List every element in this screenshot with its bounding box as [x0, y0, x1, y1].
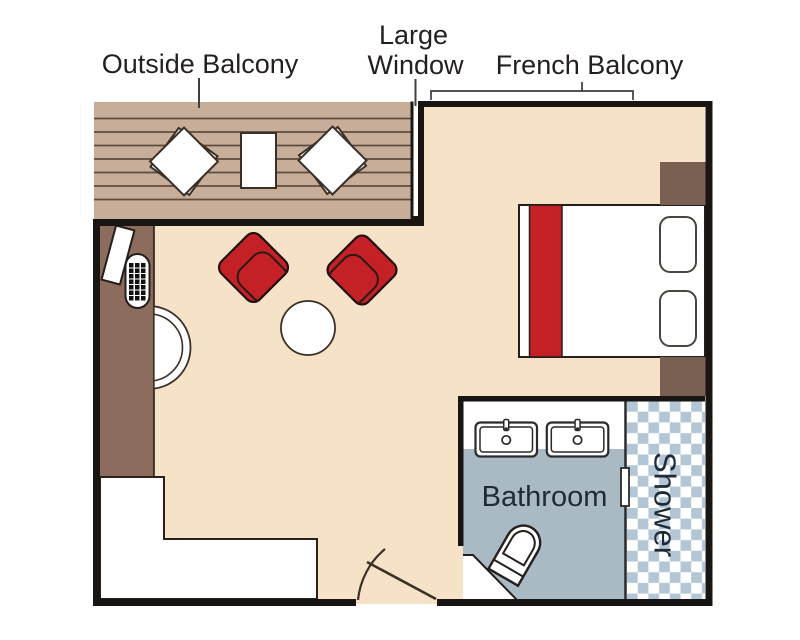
- svg-text:Shower: Shower: [647, 452, 682, 557]
- svg-text:Window: Window: [367, 50, 464, 80]
- svg-text:French Balcony: French Balcony: [496, 50, 684, 80]
- svg-text:Outside Balcony: Outside Balcony: [102, 49, 299, 79]
- svg-text:Bathroom: Bathroom: [482, 481, 608, 513]
- svg-text:Large: Large: [379, 20, 448, 50]
